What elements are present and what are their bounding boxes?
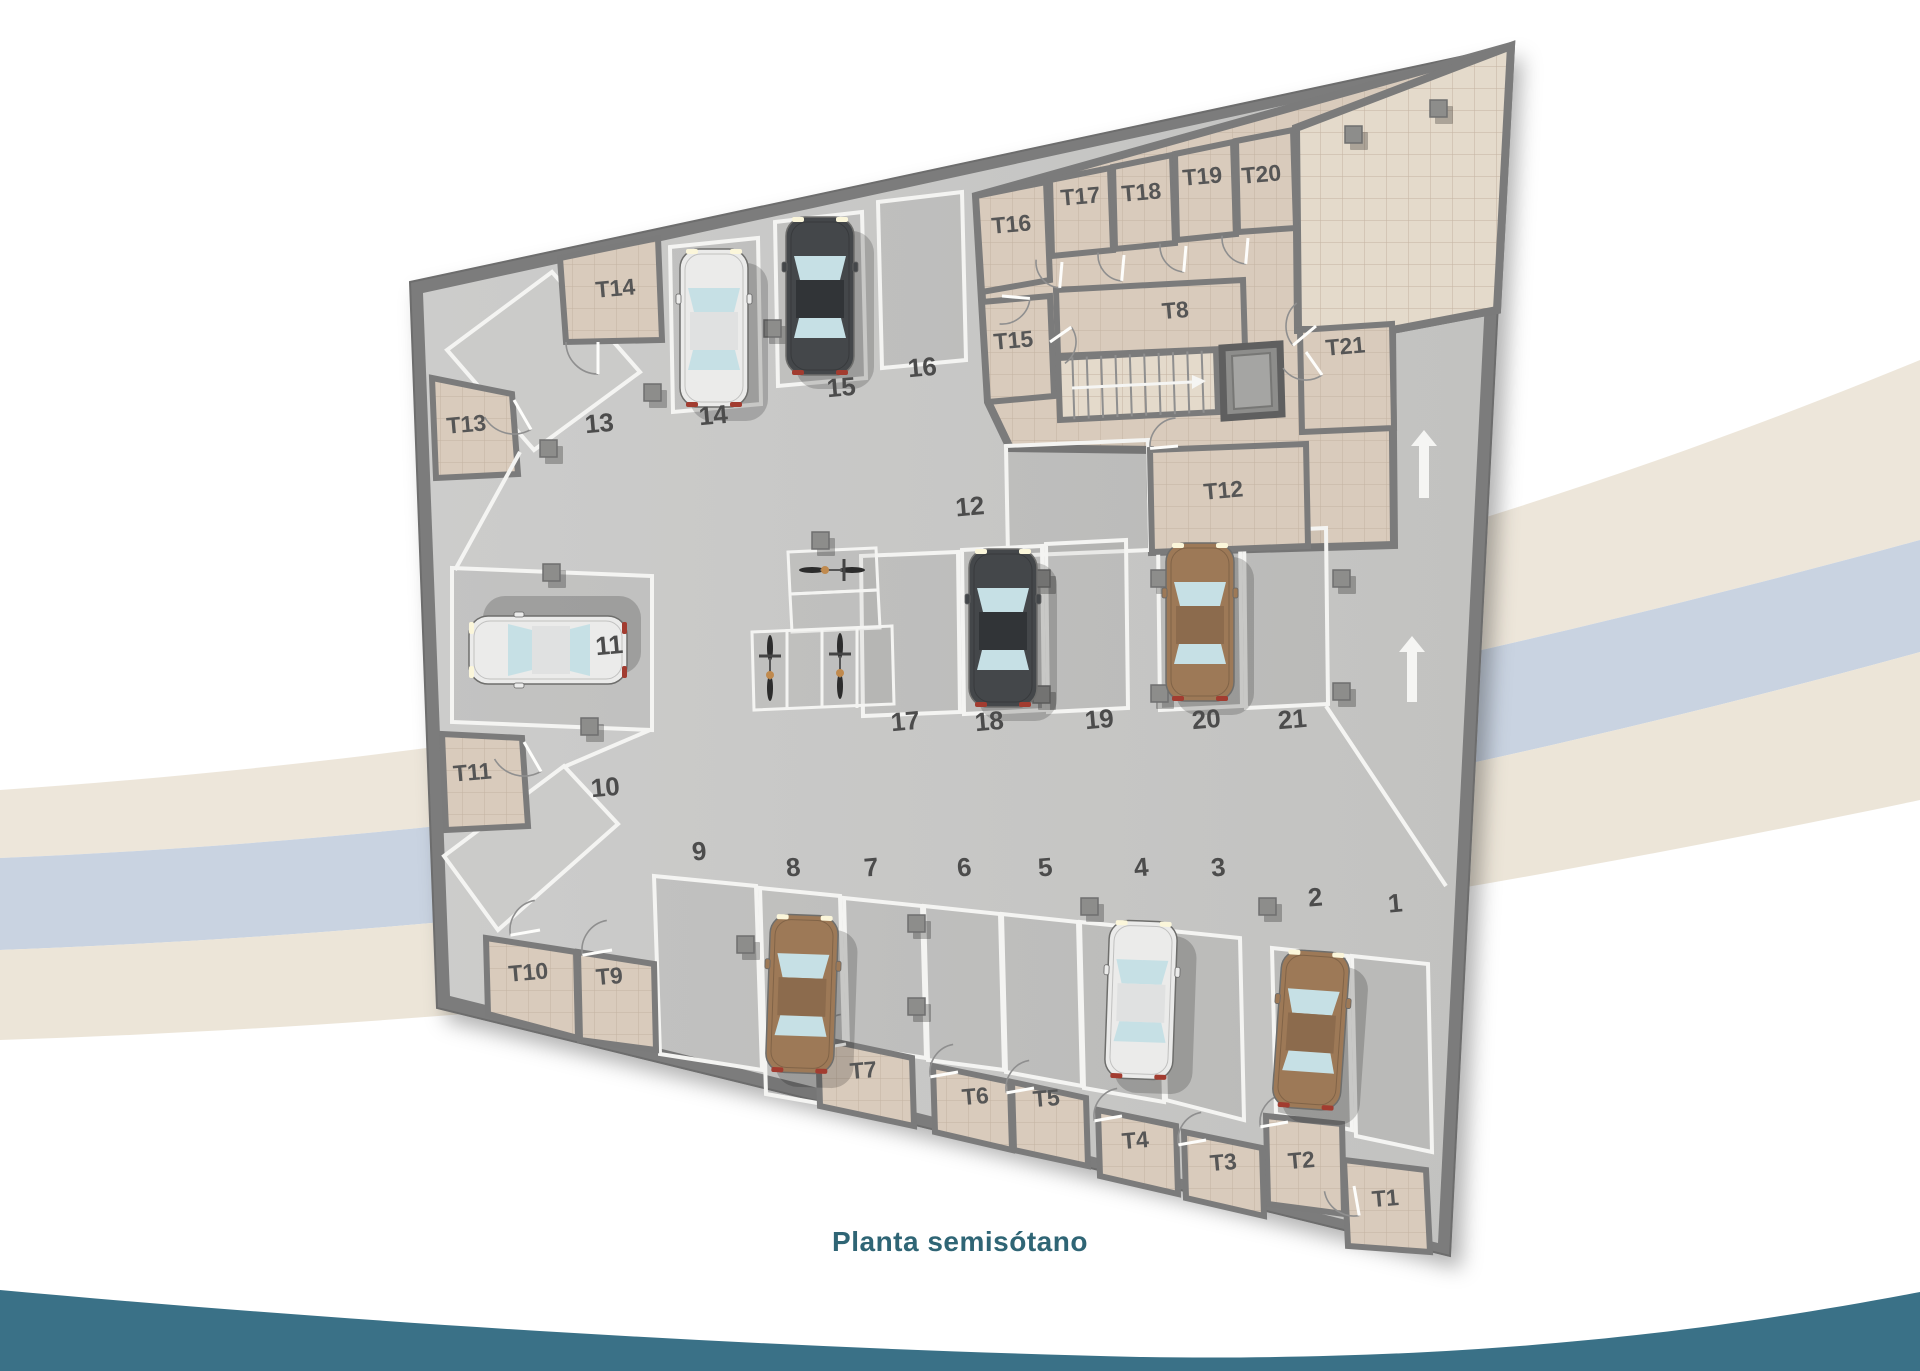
parking-spot-label-1: 1 [1387, 887, 1404, 918]
elevator-car [1232, 353, 1272, 409]
car-in-spot-15 [782, 217, 874, 389]
storage-room-label-T9: T9 [595, 962, 624, 990]
column [737, 936, 754, 953]
parking-spot-label-9: 9 [691, 835, 708, 866]
storage-room-label-T11: T11 [452, 757, 493, 786]
storage-room-label-T1: T1 [1371, 1184, 1400, 1212]
storage-room-label-T16: T16 [990, 209, 1032, 238]
parking-spot-5 [1002, 914, 1082, 1086]
elevator [1222, 344, 1282, 418]
column [1333, 570, 1350, 587]
parking-spot-label-17: 17 [890, 705, 921, 737]
column [1081, 898, 1098, 915]
storage-room-label-T17: T17 [1059, 181, 1101, 210]
parking-spot-label-21: 21 [1277, 703, 1308, 735]
storage-room-label-T14: T14 [594, 273, 636, 302]
parking-spot-19 [1046, 540, 1128, 712]
column [1333, 683, 1350, 700]
storage-room-label-T10: T10 [507, 957, 549, 986]
plan-svg: T1T2T3T4T5T6T7T8T9T10T11T12T13T14T15T16T… [0, 0, 1920, 1371]
parking-spot-label-20: 20 [1191, 703, 1222, 735]
storage-room-T17 [1050, 168, 1113, 256]
floor-plan-image: T1T2T3T4T5T6T7T8T9T10T11T12T13T14T15T16T… [0, 0, 1920, 1371]
car-in-spot-20 [1162, 543, 1254, 715]
storage-room-label-T2: T2 [1287, 1146, 1316, 1174]
storage-room-label-T7: T7 [849, 1056, 878, 1084]
column [908, 915, 925, 932]
parking-spot-16 [878, 192, 966, 368]
parking-spot-label-18: 18 [974, 705, 1005, 737]
column [1259, 898, 1276, 915]
plan-title: Planta semisótano [0, 1226, 1920, 1258]
column [1430, 100, 1447, 117]
storage-room-label-T3: T3 [1209, 1148, 1238, 1176]
stairs [1058, 350, 1218, 420]
parking-spot-label-10: 10 [590, 771, 621, 803]
column [540, 440, 557, 457]
storage-room-label-T4: T4 [1121, 1126, 1150, 1154]
storage-room-label-T5: T5 [1032, 1084, 1061, 1112]
parking-spot-label-8: 8 [785, 851, 802, 882]
storage-room-label-T6: T6 [961, 1082, 990, 1110]
parking-spot-label-13: 13 [584, 407, 615, 439]
storage-room-label-T19: T19 [1181, 161, 1223, 190]
storage-room-label-T18: T18 [1120, 177, 1162, 206]
parking-spot-label-7: 7 [863, 851, 880, 882]
column [644, 384, 661, 401]
parking-spot-21 [1244, 528, 1328, 708]
column [543, 564, 560, 581]
parking-spot-label-6: 6 [956, 851, 973, 882]
parking-spot-9 [654, 876, 762, 1070]
storage-room-T8 [1056, 280, 1245, 356]
car-in-spot-2 [1267, 949, 1371, 1127]
storage-room-label-T20: T20 [1240, 159, 1282, 188]
car-in-spot-14 [676, 249, 768, 421]
parking-spot-label-11: 11 [594, 629, 624, 661]
storage-room-label-T13: T13 [445, 409, 487, 438]
column [1151, 685, 1168, 702]
parking-spot-label-12: 12 [954, 490, 985, 522]
storage-room-T19 [1175, 142, 1236, 240]
column [812, 532, 829, 549]
storage-room-label-T15: T15 [992, 325, 1034, 354]
parking-spot-label-15: 15 [826, 371, 857, 403]
storage-room-label-T21: T21 [1324, 331, 1366, 360]
car-in-spot-8 [761, 914, 859, 1089]
storage-room-label-T8: T8 [1161, 296, 1190, 324]
parking-spot-label-3: 3 [1210, 851, 1227, 882]
parking-spot-label-19: 19 [1084, 703, 1115, 735]
column [581, 718, 598, 735]
parking-spot-label-16: 16 [907, 351, 938, 383]
column [1345, 126, 1362, 143]
parking-spot-6 [924, 906, 1004, 1070]
page: T1T2T3T4T5T6T7T8T9T10T11T12T13T14T15T16T… [0, 0, 1920, 1371]
column [908, 998, 925, 1015]
car-in-spot-4 [1100, 920, 1198, 1095]
parking-spot-12 [1006, 440, 1150, 556]
parking-spot-label-2: 2 [1307, 881, 1324, 912]
parking-spot-label-5: 5 [1037, 851, 1054, 882]
car-in-spot-18 [965, 549, 1057, 721]
storage-room-label-T12: T12 [1202, 475, 1244, 504]
parking-spot-label-14: 14 [698, 399, 730, 431]
